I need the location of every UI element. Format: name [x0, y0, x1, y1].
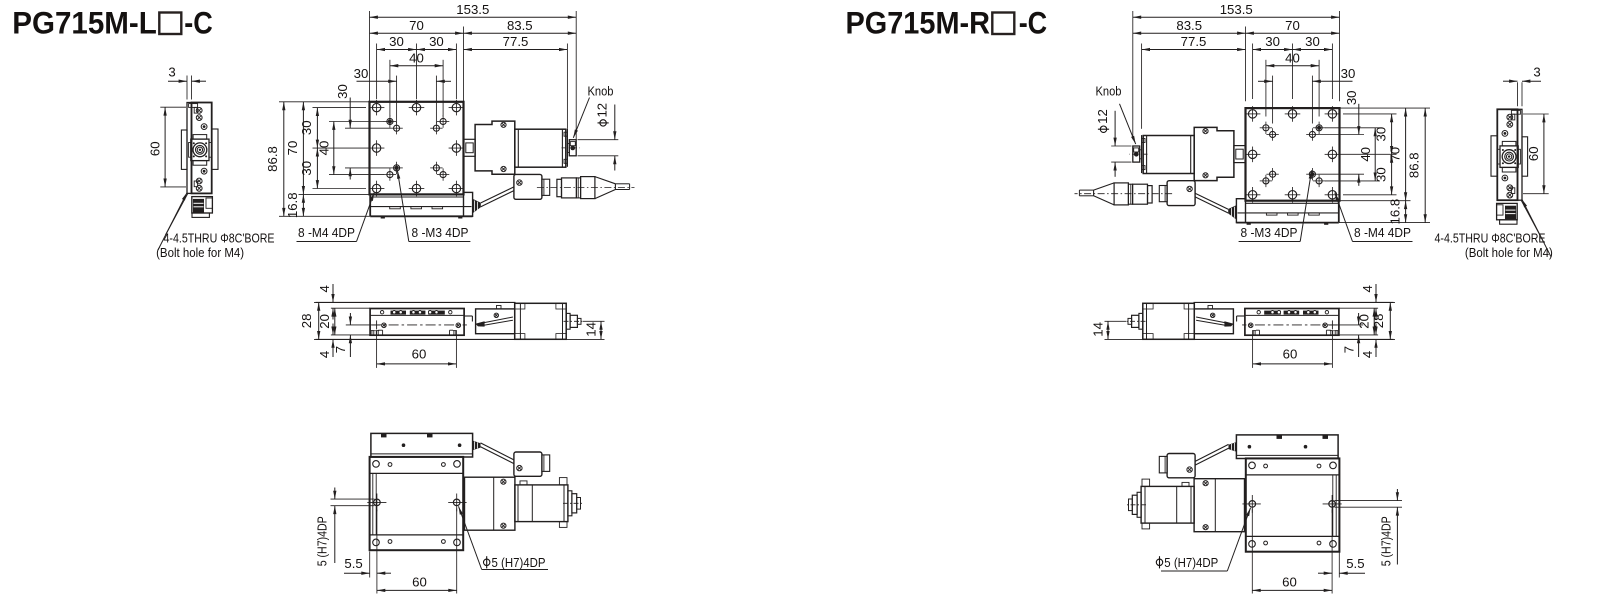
svg-text:8 -M3 4DP: 8 -M3 4DP [412, 225, 469, 240]
svg-text:Knob: Knob [588, 84, 614, 99]
svg-text:30: 30 [1373, 167, 1388, 182]
svg-text:8 -M3 4DP: 8 -M3 4DP [1241, 225, 1298, 240]
svg-text:16.8: 16.8 [285, 192, 300, 218]
svg-text:28: 28 [1371, 314, 1386, 329]
svg-text:16.8: 16.8 [1387, 199, 1402, 225]
svg-text:5 (H7)4DP: 5 (H7)4DP [1164, 555, 1218, 570]
svg-text:30: 30 [1341, 66, 1356, 81]
svg-text:4: 4 [1360, 351, 1375, 358]
svg-text:60: 60 [1283, 347, 1298, 362]
svg-text:60: 60 [147, 141, 162, 156]
svg-text:60: 60 [412, 347, 427, 362]
svg-text:153.5: 153.5 [1220, 2, 1253, 17]
svg-text:30: 30 [1344, 90, 1359, 105]
svg-text:20: 20 [317, 314, 332, 329]
svg-text:40: 40 [409, 50, 424, 65]
svg-text:40: 40 [316, 141, 331, 156]
svg-text:60: 60 [1282, 574, 1297, 589]
svg-text:PG715M-L: PG715M-L [12, 5, 157, 41]
svg-text:60: 60 [1526, 146, 1541, 161]
svg-text:30: 30 [1265, 34, 1280, 49]
svg-text:30: 30 [429, 34, 444, 49]
svg-text:40: 40 [1358, 147, 1373, 162]
svg-text:8 -M4 4DP: 8 -M4 4DP [298, 225, 355, 240]
svg-text:30: 30 [354, 66, 369, 81]
svg-text:8 -M4 4DP: 8 -M4 4DP [1354, 225, 1411, 240]
svg-text:14: 14 [1090, 322, 1105, 337]
svg-text:30: 30 [1305, 34, 1320, 49]
svg-text:14: 14 [583, 322, 598, 337]
svg-text:3: 3 [1533, 65, 1540, 80]
svg-text:7: 7 [333, 346, 348, 353]
svg-text:5 (H7)4DP: 5 (H7)4DP [314, 516, 329, 566]
svg-text:4-4.5THRU Φ8C'BORE: 4-4.5THRU Φ8C'BORE [164, 231, 275, 246]
svg-text:PG715M-R: PG715M-R [846, 5, 991, 41]
svg-text:(Bolt hole for M4): (Bolt hole for M4) [1465, 245, 1553, 260]
svg-text:30: 30 [1373, 127, 1388, 142]
svg-text:4: 4 [1360, 285, 1375, 292]
svg-text:(Bolt hole for M4): (Bolt hole for M4) [156, 245, 244, 260]
svg-text:-C: -C [184, 5, 213, 41]
svg-text:28: 28 [299, 314, 314, 329]
svg-text:77.5: 77.5 [503, 34, 529, 49]
svg-text:5.5: 5.5 [344, 556, 362, 571]
svg-text:3: 3 [168, 65, 175, 80]
svg-text:70: 70 [1285, 18, 1300, 33]
svg-text:20: 20 [1356, 314, 1371, 329]
svg-text:30: 30 [389, 34, 404, 49]
svg-text:153.5: 153.5 [456, 2, 489, 17]
svg-text:12: 12 [1095, 109, 1110, 124]
svg-text:70: 70 [1387, 147, 1402, 162]
svg-text:86.8: 86.8 [265, 146, 280, 172]
svg-text:5 (H7)4DP: 5 (H7)4DP [1378, 516, 1393, 566]
svg-text:12: 12 [595, 103, 610, 118]
svg-text:40: 40 [1285, 50, 1300, 65]
svg-text:7: 7 [1341, 346, 1356, 353]
svg-text:4: 4 [317, 285, 332, 292]
svg-text:60: 60 [412, 574, 427, 589]
svg-text:86.8: 86.8 [1406, 152, 1421, 178]
svg-text:83.5: 83.5 [507, 18, 533, 33]
svg-text:70: 70 [409, 18, 424, 33]
svg-text:Knob: Knob [1096, 84, 1122, 99]
svg-text:70: 70 [285, 141, 300, 156]
svg-text:5.5: 5.5 [1346, 556, 1364, 571]
svg-text:30: 30 [299, 161, 314, 176]
svg-text:4: 4 [317, 351, 332, 358]
svg-text:4-4.5THRU Φ8C'BORE: 4-4.5THRU Φ8C'BORE [1435, 231, 1546, 246]
svg-text:83.5: 83.5 [1176, 18, 1202, 33]
svg-text:5 (H7)4DP: 5 (H7)4DP [492, 555, 546, 570]
svg-text:30: 30 [299, 120, 314, 135]
svg-text:77.5: 77.5 [1181, 34, 1207, 49]
svg-text:-C: -C [1019, 5, 1047, 41]
svg-text:30: 30 [335, 84, 350, 99]
